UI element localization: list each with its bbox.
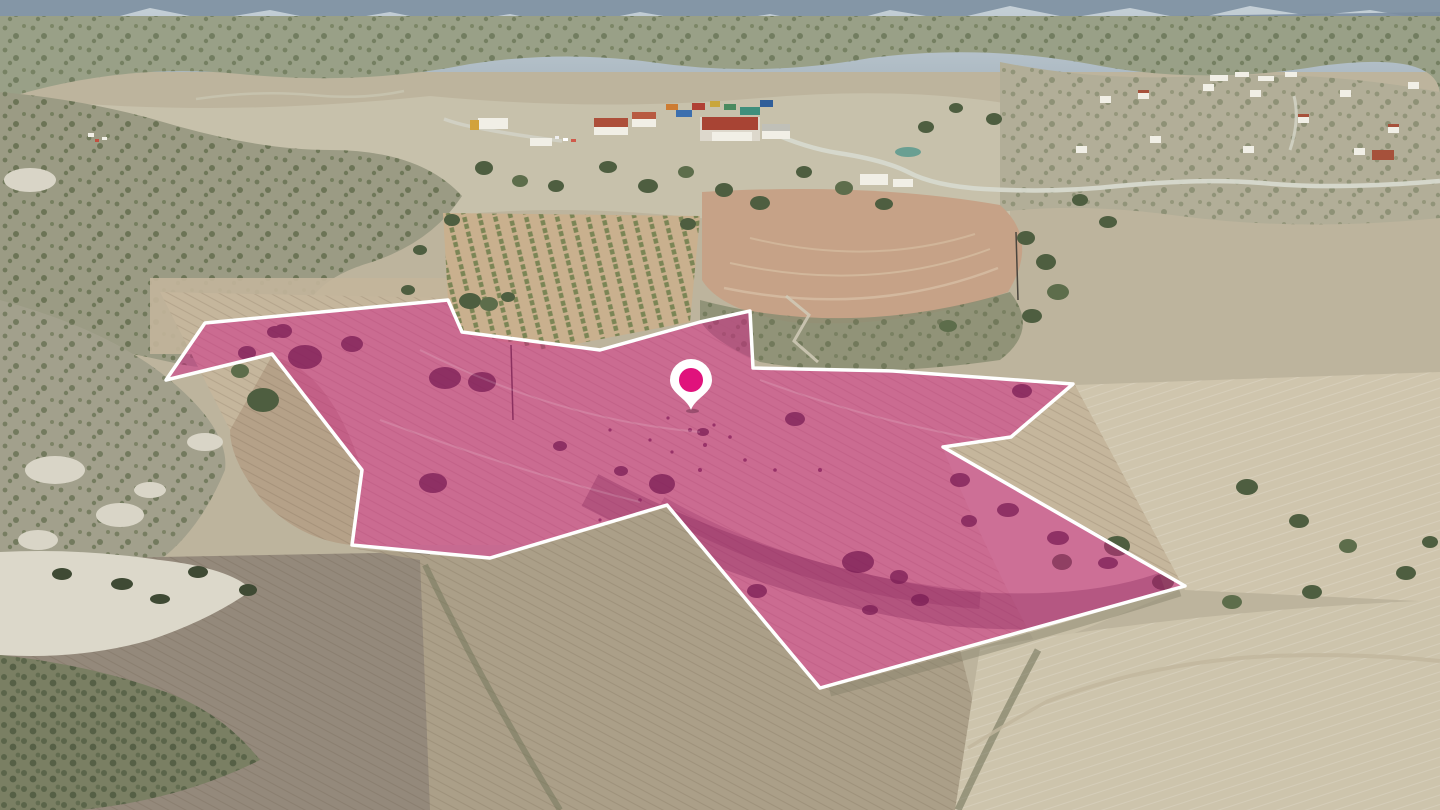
right-slope-scrub-texture [1000,62,1440,225]
house [1100,96,1111,103]
house-roof [1372,150,1394,160]
tree [512,175,528,187]
tree [750,196,770,210]
pin-shadow [686,409,699,413]
tree [501,292,515,302]
tree [444,214,460,226]
tree [401,285,415,295]
building-roof [594,118,628,127]
tree [1339,539,1357,553]
pin-dot [679,368,703,392]
chalk-patch [134,482,166,498]
greenhouse [860,174,888,185]
tree [413,245,427,255]
tree [1236,479,1258,495]
terrace-building [1235,72,1249,77]
container [760,100,773,107]
chalk-patch [96,503,144,527]
aerial-photo [0,0,1440,810]
house [1408,82,1419,89]
tree [1022,309,1042,323]
container [666,104,678,110]
shrub [239,584,257,596]
pond [895,147,921,157]
greenhouse [893,179,913,187]
tree [231,364,249,378]
house [1203,84,1214,91]
tree [715,183,733,197]
house [1150,136,1161,143]
building-roof [702,117,758,130]
building [478,118,508,129]
tree [1302,585,1322,599]
house [1250,90,1261,97]
building-roof [95,139,99,142]
tree [480,297,498,311]
vehicle [571,139,576,142]
terrace-building [1210,75,1228,81]
tree [459,293,481,309]
tree [1289,514,1309,528]
tree [875,198,893,210]
tree [247,388,279,412]
tree [986,113,1002,125]
tree [678,166,694,178]
house [1388,127,1399,133]
tree [796,166,812,178]
house [1243,146,1254,153]
tree [1017,231,1035,245]
tree [680,218,696,230]
building-roof [762,124,790,131]
tree [835,181,853,195]
container [740,107,760,115]
vehicle [563,138,568,141]
building-roof [632,112,656,119]
tree [1036,254,1056,270]
aerial-photo-canvas [0,0,1440,810]
shrub [188,566,208,578]
terrace-building [1285,72,1297,77]
tree [599,161,617,173]
tree [918,121,934,133]
tree [939,320,957,332]
shrub [150,594,170,604]
chalk-patch [4,168,56,192]
container [676,110,692,117]
tree [1047,284,1069,300]
building [102,137,107,140]
chalk-patch [187,433,223,451]
house [1354,148,1365,155]
building [88,133,94,137]
house [1298,117,1309,123]
terrace-building [1258,76,1274,81]
shrub [111,578,133,590]
house [1340,90,1351,97]
tree [1072,194,1088,206]
building [530,138,552,146]
tree [949,103,963,113]
tree [1222,595,1242,609]
vehicle [555,136,559,139]
shrub [52,568,72,580]
chalk-patch [25,456,85,484]
tree [1396,566,1416,580]
tree [548,180,564,192]
tree [1422,536,1438,548]
chalk-patch [18,530,58,550]
house [1076,146,1087,153]
container [692,103,705,110]
container [724,104,736,110]
building [712,132,752,141]
tree [475,161,493,175]
tree [638,179,658,193]
house [1138,93,1149,99]
building [470,120,479,130]
container [710,101,720,107]
tree [1099,216,1117,228]
